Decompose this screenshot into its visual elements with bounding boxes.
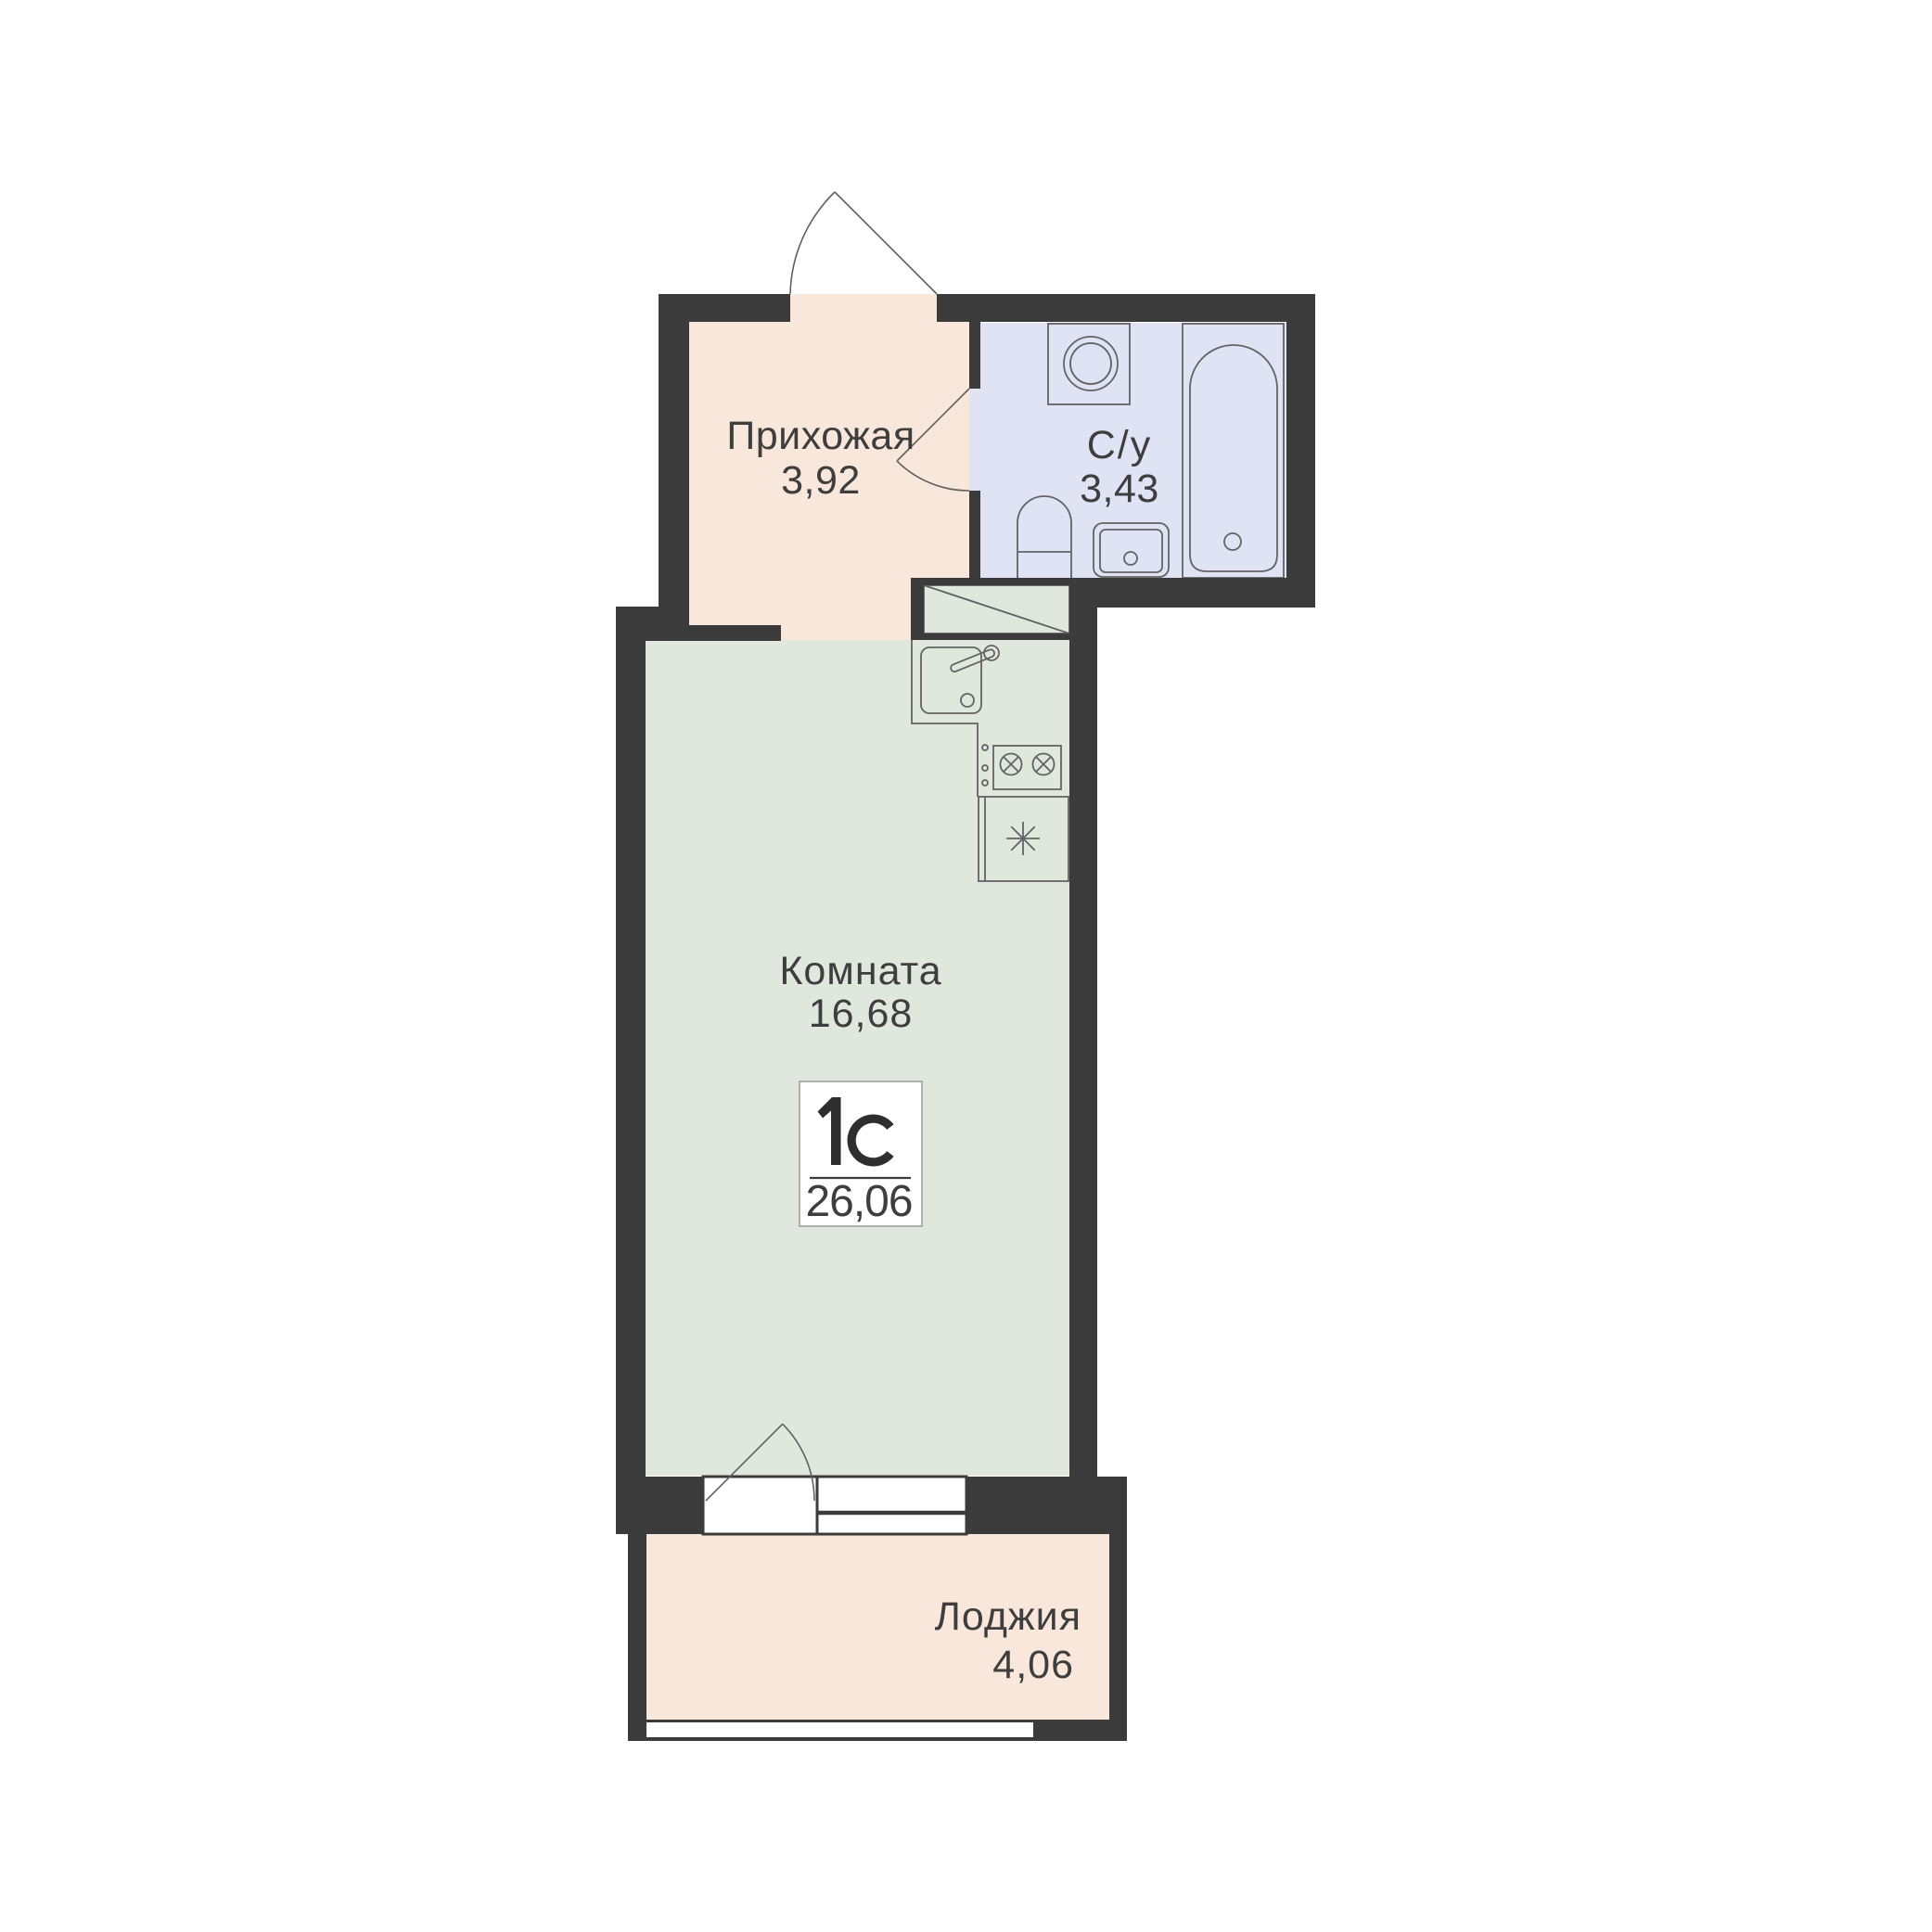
svg-text:16,68: 16,68 xyxy=(809,992,914,1036)
svg-text:Прихожая: Прихожая xyxy=(726,414,915,458)
svg-text:26,06: 26,06 xyxy=(805,1177,912,1226)
svg-text:3,92: 3,92 xyxy=(781,458,861,503)
svg-text:3,43: 3,43 xyxy=(1080,467,1159,511)
svg-text:С/у: С/у xyxy=(1087,423,1153,467)
svg-text:4,06: 4,06 xyxy=(992,1643,1074,1687)
svg-text:Лоджия: Лоджия xyxy=(935,1594,1081,1639)
svg-text:Комната: Комната xyxy=(779,949,941,993)
